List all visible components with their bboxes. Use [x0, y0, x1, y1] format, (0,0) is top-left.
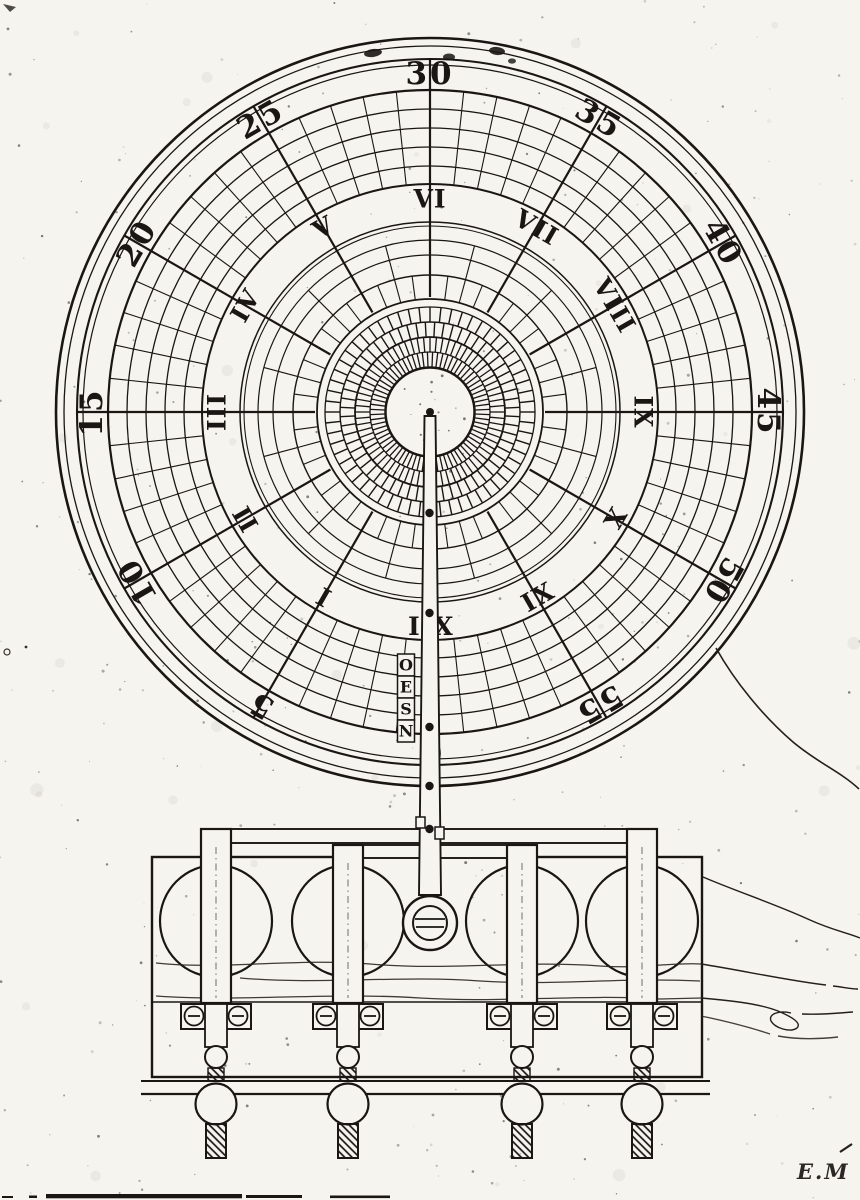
rivet [425, 782, 433, 790]
terminal-stem [206, 1124, 226, 1158]
hour-label: I [311, 581, 337, 612]
hour-label: V [307, 210, 340, 246]
pointer-needle: O E S N [398, 416, 458, 950]
pointer-letter-box: E [398, 676, 415, 698]
hour-label: VI [412, 185, 446, 214]
terminal-stem [512, 1124, 532, 1158]
roller [631, 1046, 653, 1068]
svg-text:N: N [399, 722, 414, 741]
collar-tab [435, 827, 444, 839]
minute-label: 5 [241, 683, 280, 726]
hour-label: VII [509, 203, 564, 252]
hour-label: IV [225, 284, 267, 327]
hour-label: XI [515, 576, 558, 618]
hour-label: X [597, 502, 632, 534]
minute-label: 30 [405, 56, 454, 92]
terminal-stem [632, 1124, 652, 1158]
roller [337, 1046, 359, 1068]
paper-crack [716, 648, 859, 789]
pointer-letter-box: N [398, 720, 415, 742]
rivet [425, 825, 433, 833]
hour-label: IX [629, 395, 658, 428]
hour-label: VIII [587, 272, 642, 338]
hatched-joint [514, 1068, 530, 1081]
hatched-joint [340, 1068, 356, 1081]
terminal-ball [622, 1084, 663, 1125]
paper-cracks-right [701, 877, 860, 1039]
terminal-ball [328, 1084, 369, 1125]
engraving-plate-page: 0510152025303540455055VIVIIVIIIIXXXIXIII… [0, 0, 860, 1200]
hour-label: II [227, 500, 265, 536]
roller [511, 1046, 533, 1068]
rivet [425, 509, 433, 517]
pointer-letter-box: O [398, 654, 415, 676]
terminal-ball [196, 1084, 237, 1125]
dial-mechanism-figure: 0510152025303540455055VIVIIVIIIIXXXIXIII… [0, 0, 860, 1200]
collar-tab [416, 817, 425, 828]
terminal-stem [338, 1124, 358, 1158]
svg-text:S: S [400, 700, 412, 719]
terminal-ball [502, 1084, 543, 1125]
grain-lines [156, 962, 701, 999]
hatched-joint [208, 1068, 224, 1081]
svg-text:E: E [400, 678, 412, 697]
hatched-joint [634, 1068, 650, 1081]
svg-text:O: O [399, 656, 413, 675]
hour-label: III [203, 393, 232, 431]
roller [205, 1046, 227, 1068]
bottom-rule [2, 1194, 390, 1198]
minute-label: 15 [74, 387, 110, 436]
rivet [425, 723, 433, 731]
engraver-signature: E.M [797, 1159, 850, 1184]
minute-label: 45 [750, 387, 786, 436]
rivet [425, 609, 433, 617]
pointer-letter-box: S [398, 698, 415, 720]
